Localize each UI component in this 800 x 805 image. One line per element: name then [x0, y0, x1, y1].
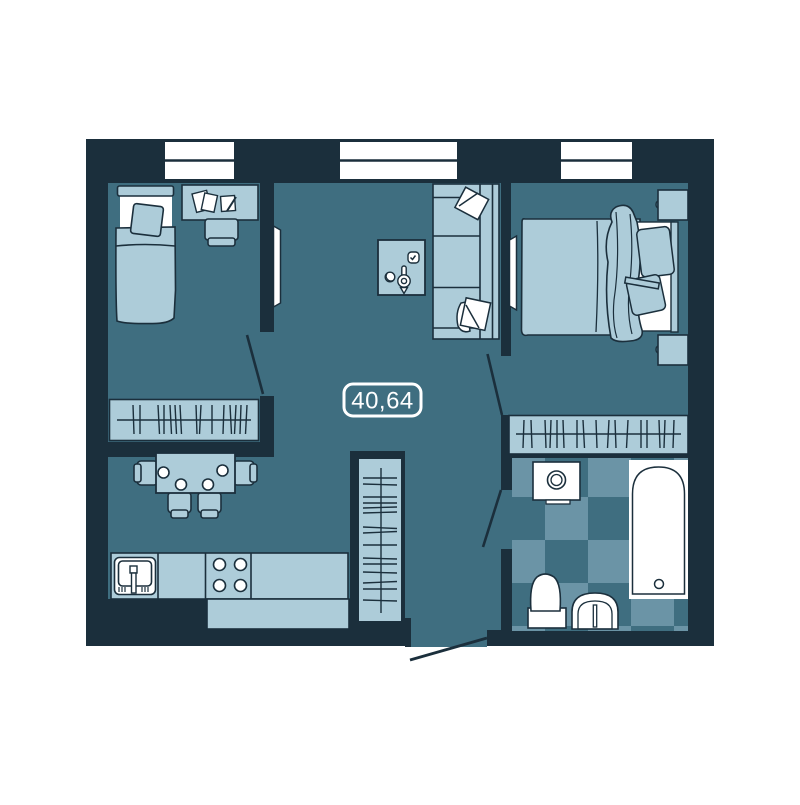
svg-text:40,64: 40,64	[351, 388, 414, 415]
